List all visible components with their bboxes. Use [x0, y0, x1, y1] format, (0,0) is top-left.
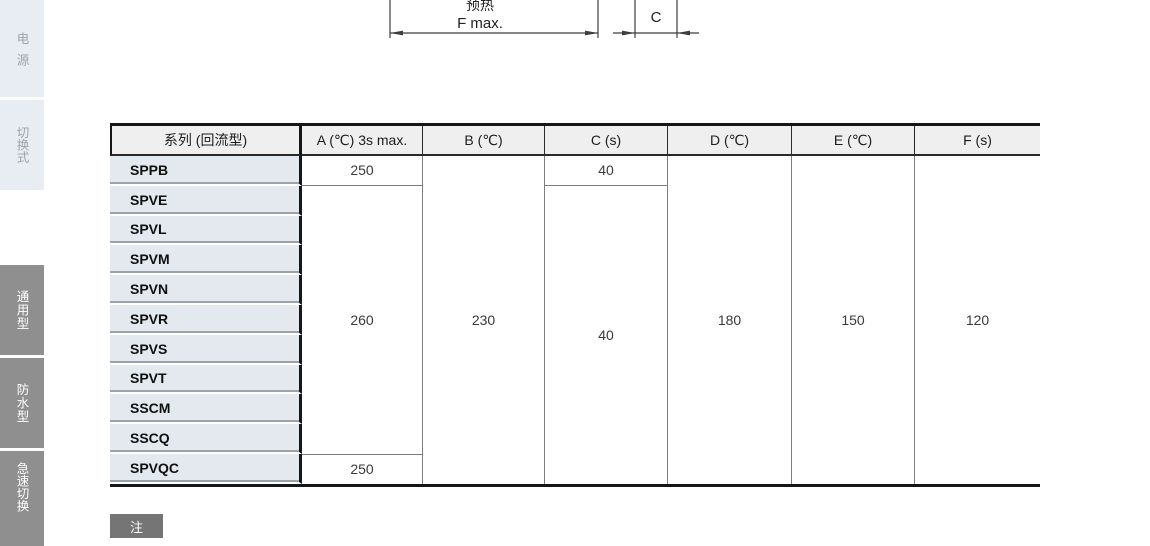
- column-header-series: 系列 (回流型): [110, 126, 302, 156]
- series-cell-spvs: SPVS: [110, 335, 302, 365]
- sidebar-tab-waterproof-type: 防水型: [0, 358, 44, 448]
- sidebar-tab-power-supply: 电源: [0, 0, 44, 97]
- value-c-sppb: 40: [545, 156, 668, 186]
- preheat-label: 预热: [466, 0, 494, 13]
- value-b-merged: 230: [423, 156, 545, 484]
- column-header-e: E (℃): [792, 126, 915, 156]
- value-a-merged: 260: [302, 186, 423, 454]
- arrowhead-right-icon: [622, 31, 635, 36]
- value-d-merged: 180: [668, 156, 792, 484]
- c-label: C: [651, 9, 662, 26]
- value-c-merged: 40: [545, 186, 668, 484]
- series-cell-spvn: SPVN: [110, 275, 302, 305]
- series-cell-spvm: SPVM: [110, 245, 302, 275]
- series-cell-spvt: SPVT: [110, 365, 302, 395]
- sidebar-tab-general-type: 通用型: [0, 265, 44, 355]
- series-cell-spvqc: SPVQC: [110, 454, 302, 484]
- arrowhead-left-icon: [677, 31, 690, 36]
- f-max-label: F max.: [457, 15, 503, 32]
- value-a-spvqc: 250: [302, 454, 423, 484]
- reflow-profile-dimension-diagram: 预热 F max. C: [380, 0, 710, 46]
- reflow-conditions-table: 系列 (回流型) A (℃) 3s max. B (℃) C (s) D (℃)…: [110, 123, 1040, 487]
- sidebar-tab-rapid-switching: 急速切换: [0, 451, 44, 546]
- column-header-d: D (℃): [668, 126, 792, 156]
- series-cell-spvr: SPVR: [110, 305, 302, 335]
- series-cell-sppb: SPPB: [110, 156, 302, 186]
- series-cell-spve: SPVE: [110, 186, 302, 216]
- value-f-merged: 120: [915, 156, 1040, 484]
- arrowhead-right-icon: [585, 31, 598, 36]
- arrowhead-left-icon: [390, 31, 403, 36]
- column-header-b: B (℃): [423, 126, 545, 156]
- value-e-merged: 150: [792, 156, 915, 484]
- value-a-sppb: 250: [302, 156, 423, 186]
- series-cell-sscm: SSCM: [110, 394, 302, 424]
- column-header-c: C (s): [545, 126, 668, 156]
- column-header-a: A (℃) 3s max.: [302, 126, 423, 156]
- series-cell-sscq: SSCQ: [110, 424, 302, 454]
- column-header-f: F (s): [915, 126, 1040, 156]
- sidebar-tab-switching: 切换式: [0, 100, 44, 190]
- note-badge: 注: [110, 514, 163, 538]
- series-cell-spvl: SPVL: [110, 216, 302, 246]
